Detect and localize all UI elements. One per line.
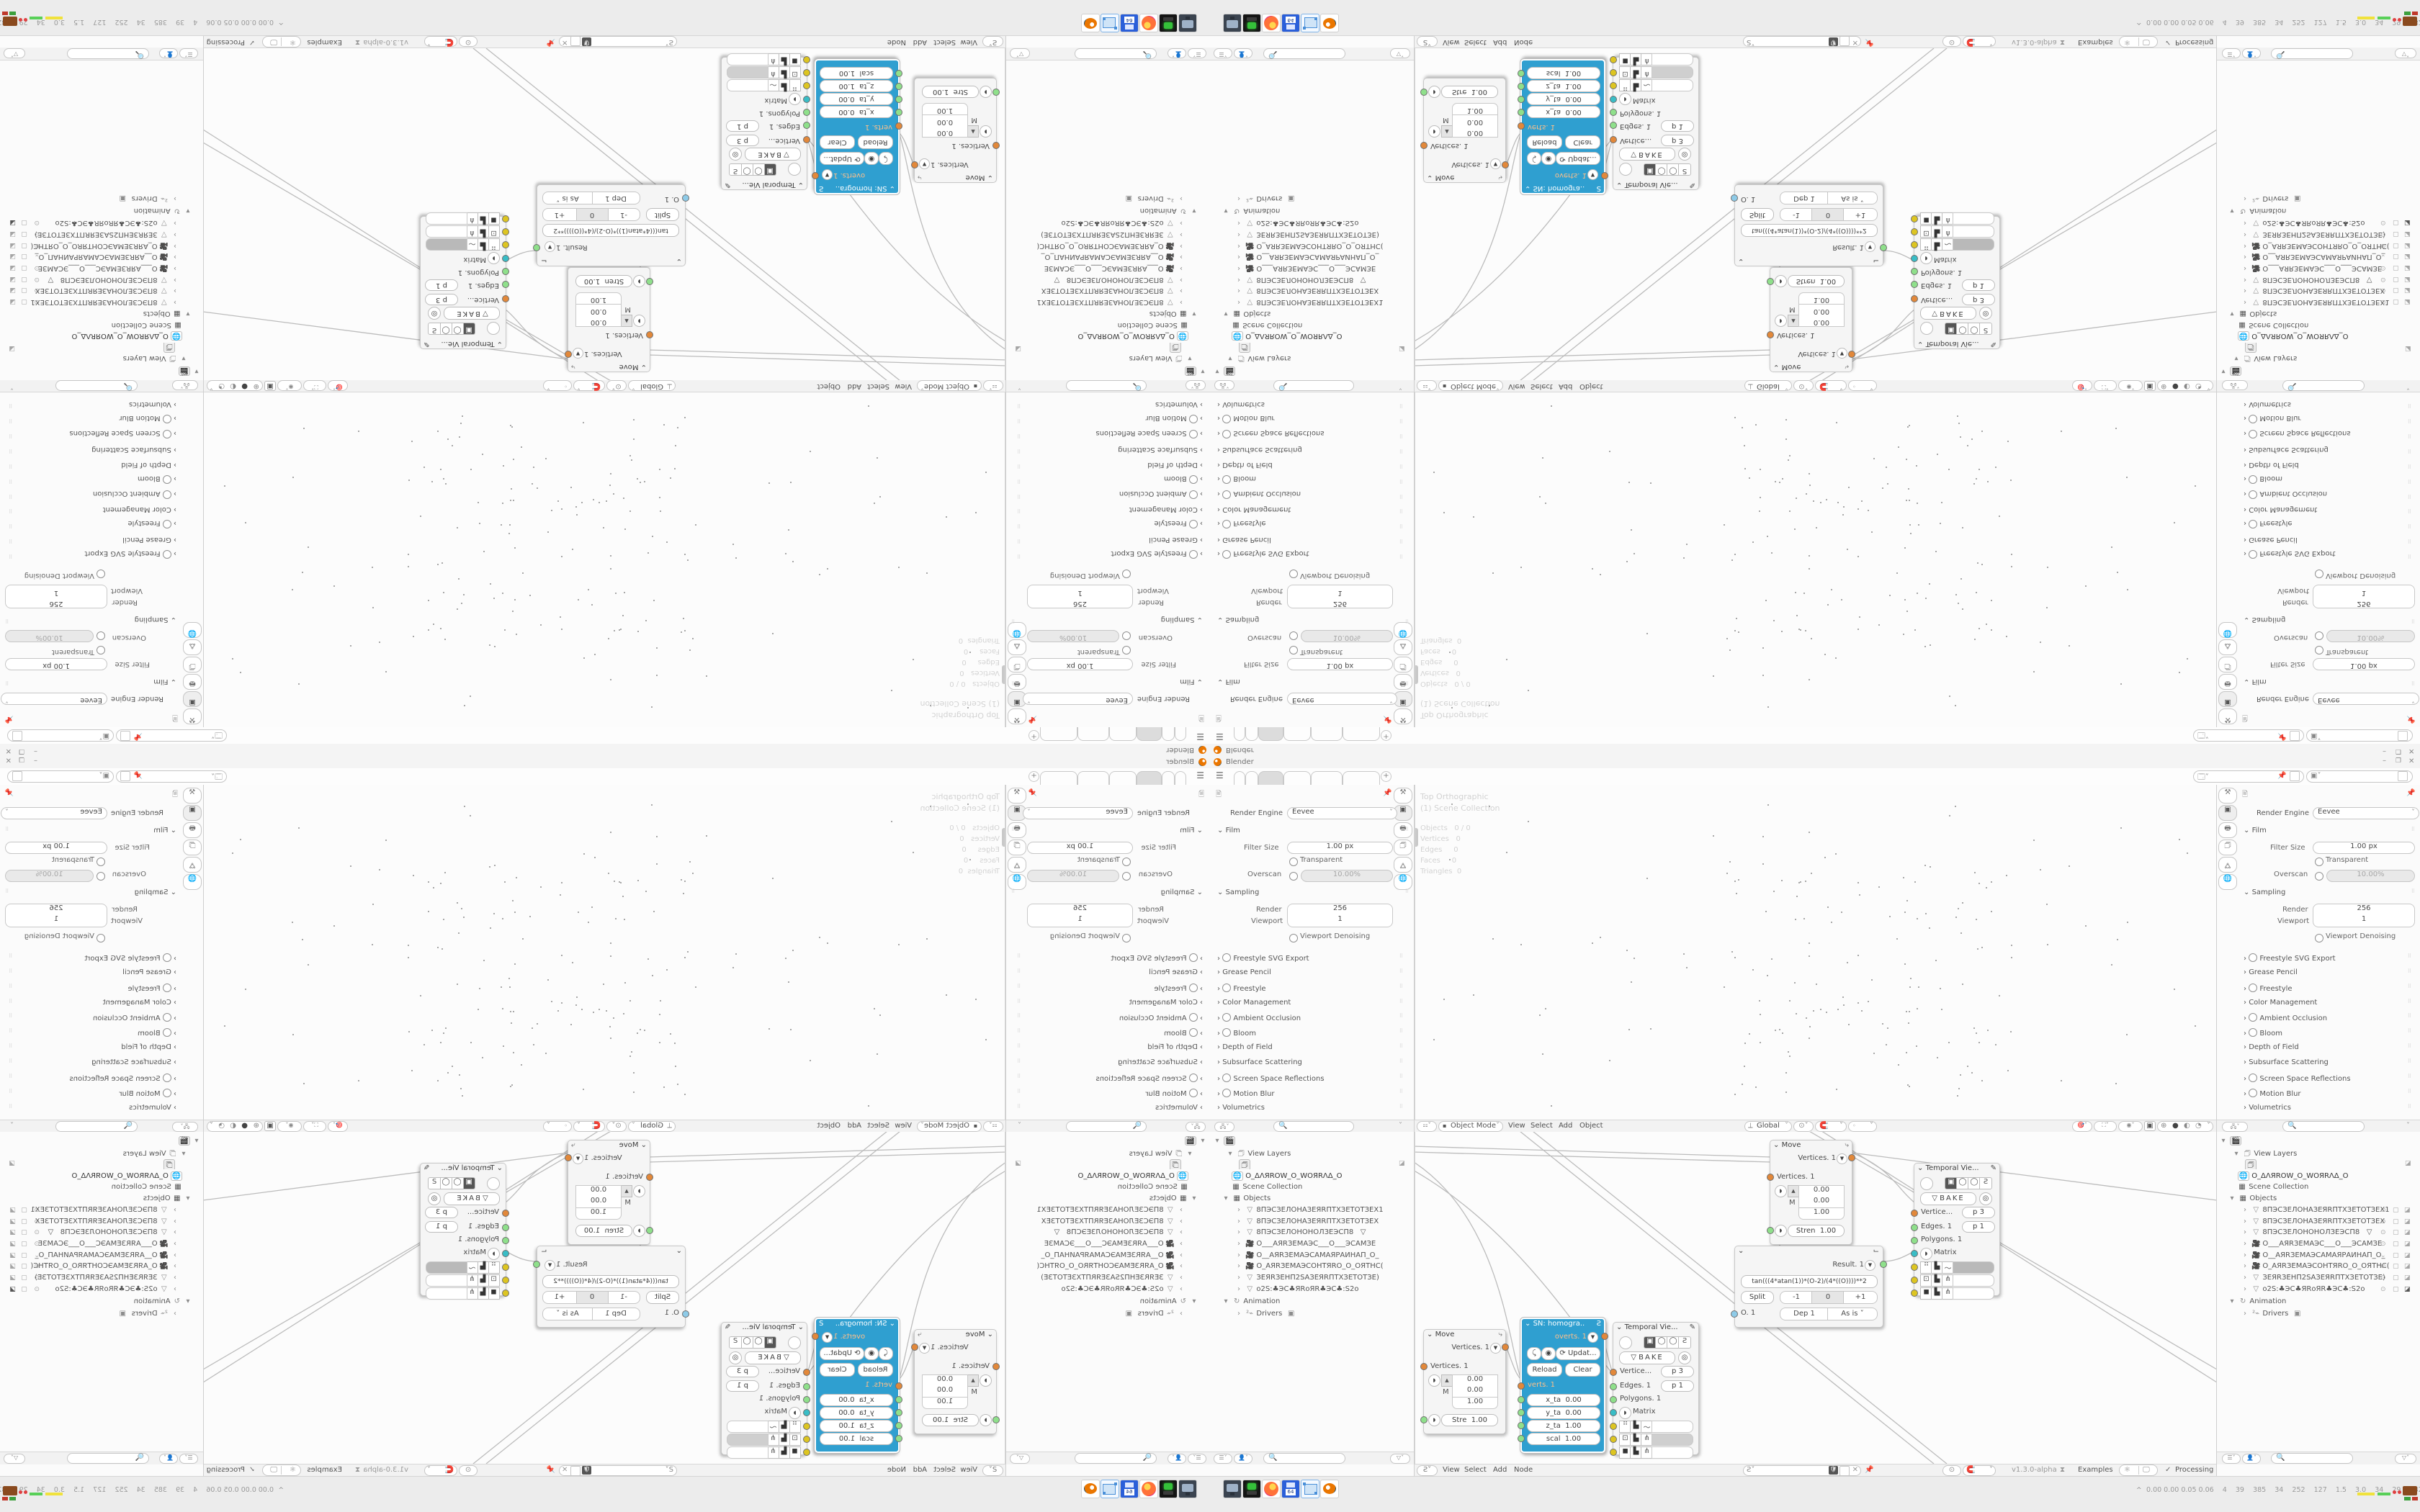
output-socket-overts[interactable] xyxy=(1601,1333,1608,1340)
curve-display-icon[interactable]: Ƨ xyxy=(1678,163,1691,176)
menu-view[interactable]: View xyxy=(1508,1122,1525,1130)
outliner-search-input[interactable]: 🔍 xyxy=(1263,48,1345,59)
taskbar-recorder-icon[interactable] xyxy=(1242,1480,1261,1498)
tray-red-dot[interactable] xyxy=(24,18,27,22)
outliner-object-row[interactable]: › ▽ 8ПЭСЗЕЛОНАЗЕЯRПТХЗЕТОТЗЕХ1 xyxy=(1031,296,1186,306)
field-y-ta[interactable]: y_ta 0.00 xyxy=(820,93,893,105)
input-socket-material-1[interactable] xyxy=(803,1423,810,1430)
link-toggle-icon[interactable]: ◗ xyxy=(1428,86,1440,98)
node-sn-homograph[interactable]: ⌄ SN: homogra..Ƨ overts. 1 ▼ ⤹ ◉ ⟳ Updat… xyxy=(1520,59,1605,194)
pin-icon[interactable]: 📌 xyxy=(1028,715,1037,723)
value-z[interactable]: 1.00 xyxy=(1798,292,1845,304)
input-socket-polygons[interactable] xyxy=(502,268,509,275)
new-scene-icon[interactable] xyxy=(2290,731,2300,741)
display-mode-icon[interactable]: ☰˅ xyxy=(1188,1454,1206,1464)
curve-icon[interactable]: ⋔ xyxy=(466,225,478,238)
outliner-object-row[interactable]: › 🎥 O_AЯRЗЕМАЭСОНТЯRO_O_OЯТНС( xyxy=(2241,1262,2396,1272)
input-socket-o[interactable] xyxy=(1731,1310,1738,1318)
eye-icon[interactable]: ◉ xyxy=(1541,152,1556,165)
taskbar-screenshot-tool-icon[interactable] xyxy=(1223,14,1242,32)
pin-icon[interactable]: 📌 xyxy=(2406,789,2415,797)
outliner-objects[interactable]: ▾ ▦ Objects xyxy=(2228,1194,2408,1205)
render-engine-dropdown[interactable]: Eevee˅ xyxy=(1,693,107,705)
new-scene-icon[interactable] xyxy=(120,731,130,741)
link-toggle-icon[interactable]: ◗ xyxy=(1428,125,1440,138)
film-section[interactable]: ⌄ Film xyxy=(2244,678,2267,685)
input-socket-xta[interactable] xyxy=(1518,1396,1525,1403)
hamburger-menu-icon[interactable]: ☰ xyxy=(1216,732,1224,742)
area-splitter[interactable] xyxy=(1414,785,1415,1476)
input-socket-o[interactable] xyxy=(1731,194,1738,202)
tray-red-dot[interactable] xyxy=(19,1490,22,1494)
viewport-3d[interactable]: Top Orthographic (1) Scene Collection Ob… xyxy=(202,785,1005,1120)
camera-icon[interactable]: ◪ xyxy=(1016,1160,1021,1167)
taskbar-save-disk-icon[interactable]: 64 xyxy=(1120,1480,1139,1498)
outliner-object-row[interactable]: › ▽ 8ПЭСЗЕЛОНОНОЛЗЕЭСП8 ▽ xyxy=(1031,274,1186,284)
workspace-tab-2[interactable] xyxy=(1245,726,1258,741)
examples-menu[interactable]: Examples xyxy=(307,1466,342,1474)
input-socket-material-1[interactable] xyxy=(502,241,509,248)
taskbar-save-disk-icon[interactable]: 64 xyxy=(1120,14,1139,32)
split-button[interactable]: Split xyxy=(1741,208,1774,221)
outliner-scene-row[interactable]: ▾ 🎬 xyxy=(6,1136,201,1146)
sampling-section[interactable]: ⌄ Sampling xyxy=(2244,888,2285,896)
outliner-object-row[interactable]: › 🎥 O__AЯRЗЕМАЭСАМАЯРАИНАП_O_ xyxy=(1031,1251,1186,1261)
taskbar-screenshot-tool-icon[interactable] xyxy=(1178,14,1197,32)
outliner-object-row[interactable]: › ▽ ЗЕЯRЗЕНП2SАЗЕЯRПТХЗЕТОТЗЕ) xyxy=(24,1274,179,1284)
update-button[interactable]: ⟳ Updat... xyxy=(1556,152,1600,165)
overscan-field[interactable]: 10.00% xyxy=(5,630,94,642)
snap-toggle-icon[interactable]: ⊙ xyxy=(1942,36,1961,47)
mode-dropdown[interactable]: ▪Object Mode˅ xyxy=(1438,1121,1503,1132)
add-workspace-button[interactable]: + xyxy=(1028,730,1039,741)
taskbar-save-disk-icon[interactable]: 64 xyxy=(1281,1480,1300,1498)
outliner-scene-row[interactable]: ▾ 🎬 xyxy=(1213,1136,1407,1146)
palette-icon[interactable]: ▙ xyxy=(778,53,790,66)
camera-icon[interactable]: ◪ xyxy=(1399,345,1404,352)
value-z[interactable]: 1.00 xyxy=(1452,1398,1498,1409)
activate-toggle[interactable] xyxy=(487,1177,500,1190)
output-socket-vertices[interactable] xyxy=(1848,1154,1855,1161)
overscan-field[interactable]: 10.00% xyxy=(1027,630,1119,642)
swatch-icon[interactable]: ⠛ xyxy=(789,79,801,91)
render-preview-icon[interactable]: ▣ xyxy=(264,1121,276,1131)
outliner-object-row[interactable]: › ▽ о2S:♣ЭС♣ЯRоЯR♣ЭС♣:S2о xyxy=(1234,1285,1389,1295)
vertices-badge[interactable]: p 3 xyxy=(726,1366,759,1377)
reload-button[interactable]: Reload xyxy=(858,135,893,149)
outliner-animation[interactable]: ▾ ↻ Animation xyxy=(1222,204,1402,215)
value-x[interactable]: 0.00 xyxy=(1452,1374,1498,1387)
outliner-view-layer-item[interactable]: 🗇◪ xyxy=(1016,1159,1181,1169)
value-x[interactable]: 0.00 xyxy=(1798,315,1845,327)
formula-input[interactable]: tan(((4*atan(1))*(O-2)/(4*((O))))**2 xyxy=(1741,1275,1878,1288)
socket-expand-icon[interactable]: ▼ xyxy=(1490,158,1501,169)
outliner-animation[interactable]: ▾ ↻ Animation xyxy=(1018,204,1198,215)
value-y[interactable]: 0.00 xyxy=(575,304,622,315)
workspace-tab-4[interactable] xyxy=(1109,726,1137,741)
input-socket-strength[interactable] xyxy=(646,278,653,285)
bake-button[interactable]: ▽ BAKE xyxy=(1619,1351,1675,1364)
menu-view[interactable]: View xyxy=(960,38,977,46)
pin-icon[interactable]: 📌 xyxy=(134,772,143,780)
input-socket-strength[interactable] xyxy=(1420,1416,1428,1423)
value-x[interactable]: 0.00 xyxy=(575,1185,622,1197)
sampling-section[interactable]: ⌄ Sampling xyxy=(135,616,176,624)
viewport-denoising-checkbox[interactable] xyxy=(2315,570,2323,578)
filter-size-field[interactable]: 1.00 px xyxy=(2313,842,2415,854)
sampling-section[interactable]: ⌄ Sampling xyxy=(1217,888,1259,896)
menu-add[interactable]: Add xyxy=(848,382,861,390)
input-socket-material-3[interactable] xyxy=(1911,1290,1918,1297)
palette-icon[interactable]: ▙ xyxy=(477,212,489,225)
minus-one-button[interactable]: -1 xyxy=(607,1291,640,1304)
link-toggle-icon[interactable]: ◗ xyxy=(1775,1225,1787,1237)
viewport-3d[interactable]: Top Orthographic (1) Scene Collection Ob… xyxy=(1415,392,2218,727)
outliner-scene-collection[interactable]: ▦ Scene Collection xyxy=(1008,1183,1188,1193)
vertices-badge[interactable]: p 3 xyxy=(425,294,458,305)
outliner-scene-collection[interactable]: ▦ Scene Collection xyxy=(2238,1183,2418,1193)
menu-add[interactable]: Add xyxy=(1559,382,1572,390)
outliner-animation[interactable]: ▾ ↻ Animation xyxy=(2228,204,2408,215)
swatch-icon[interactable]: ⠛ xyxy=(789,1421,801,1433)
swatch-icon[interactable]: ⊡ xyxy=(488,225,500,238)
stepper-up-icon[interactable]: ▲ xyxy=(1788,1185,1799,1197)
input-socket-material-2[interactable] xyxy=(502,1277,509,1284)
outliner-arrow-object[interactable]: 🌐 O_ΔΛЯROW_O_WOЯRΛΔ_O xyxy=(1008,330,1188,341)
filter-funnel-icon[interactable]: ▽˅ xyxy=(1010,48,1030,58)
scrollbar-handle[interactable] xyxy=(1415,828,1418,847)
plus-one-button[interactable]: +1 xyxy=(542,208,577,221)
depth-field[interactable]: Dep 1 xyxy=(591,1308,640,1320)
material-field-3[interactable] xyxy=(1652,1446,1693,1459)
menu-node[interactable]: Node xyxy=(1514,38,1533,46)
outliner-drivers[interactable]: › ²⌁ Drivers ▣ xyxy=(0,1310,179,1320)
outliner-search-input[interactable]: 🔍 xyxy=(1075,48,1157,59)
transparent-checkbox[interactable] xyxy=(97,858,105,866)
edges-badge[interactable]: p 1 xyxy=(425,1221,458,1233)
tray-green-indicator[interactable] xyxy=(2378,17,2390,19)
outliner-view-layers[interactable]: ▾ 🗇 View Layers xyxy=(8,1148,188,1158)
display-mode-icon[interactable]: ☰˅ xyxy=(2222,48,2241,58)
outliner-object-row[interactable]: › 🎥 O__AЯRЗЕМАЭСАМАЯРАИНАП_O_ xyxy=(1234,1251,1389,1261)
tab-output-icon[interactable]: 🖶 xyxy=(2218,674,2237,690)
outliner-arrow-object[interactable]: 🌐 O_ΔΛЯROW_O_WOЯRΛΔ_O xyxy=(1232,1171,1412,1182)
input-socket-yta[interactable] xyxy=(895,1409,902,1416)
outliner-scene-row[interactable]: ▾ 🎬 xyxy=(1013,366,1207,376)
outliner-object-row[interactable]: › 🎥 O___AЯRЗЕМАЭС___O___ЭСАМЗЕ xyxy=(24,1240,179,1250)
filter-funnel-icon[interactable]: ▽˅ xyxy=(1390,1454,1410,1464)
taskbar-firefox-icon[interactable] xyxy=(1139,1480,1158,1498)
output-socket-overts[interactable] xyxy=(812,1333,819,1340)
tray-green-indicator[interactable] xyxy=(30,17,42,19)
field-x-ta[interactable]: x_ta 0.00 xyxy=(820,1394,893,1406)
node-sn-homograph[interactable]: ⌄ SN: homogra..Ƨ overts. 1 ▼ ⤹ ◉ ⟳ Updat… xyxy=(1520,1318,1605,1453)
input-socket-o[interactable] xyxy=(682,1310,689,1318)
view-layer-selector[interactable]: ▣˅ xyxy=(2306,770,2413,783)
workspace-tab-6[interactable] xyxy=(1343,726,1380,741)
display-mode-icon[interactable]: ☰˅ xyxy=(1214,1454,1232,1464)
script-icon[interactable]: ⤹ xyxy=(879,1347,893,1360)
zero-button[interactable]: 0 xyxy=(1811,1291,1845,1304)
workspace-tab-1[interactable] xyxy=(1175,726,1186,741)
filter-id-icon[interactable]: 👤˅ xyxy=(159,48,178,58)
outliner-drivers[interactable]: › ²⌁ Drivers ▣ xyxy=(1005,192,1186,202)
curve-icon[interactable]: 〜 xyxy=(466,1261,478,1274)
pin-icon[interactable]: 📌 xyxy=(134,732,143,740)
editor-type-icon[interactable]: 🖧˅ xyxy=(1214,1122,1234,1132)
swatch-icon[interactable]: ⠛ xyxy=(488,238,500,251)
reload-button[interactable]: Reload xyxy=(1527,135,1562,149)
input-socket-xta[interactable] xyxy=(895,1396,902,1403)
mode-dropdown[interactable]: ▪Object Mode˅ xyxy=(917,380,982,391)
input-socket-polygons[interactable] xyxy=(502,1237,509,1244)
outliner-arrow-object[interactable]: 🌐 O_ΔΛЯROW_O_WOЯRΛΔ_O xyxy=(2,1171,182,1182)
tab-output-icon[interactable]: 🖶 xyxy=(1394,674,1412,690)
output-socket-vertices[interactable] xyxy=(1502,1344,1509,1351)
taskbar-save-disk-icon[interactable]: 64 xyxy=(1281,14,1300,32)
film-section[interactable]: ⌄ Film xyxy=(153,827,176,834)
menu-node[interactable]: Node xyxy=(887,1466,906,1474)
input-socket-vertices[interactable] xyxy=(992,142,1000,149)
properties-search-input[interactable]: 🔍 xyxy=(55,1121,138,1132)
tray-red-dot[interactable] xyxy=(24,1490,27,1494)
node-temporal-viewer-b[interactable]: ⌄ Temporal Vie...✎ ▣ ◯ ◯ Ƨ ▽ BAKE ◎ Vert… xyxy=(420,216,506,349)
chevron-down-icon[interactable]: ˅ xyxy=(2406,1122,2410,1130)
sampling-viewport-field[interactable]: 1 xyxy=(2313,585,2415,597)
editor-type-icon[interactable]: 🖧˅ xyxy=(1186,380,1206,390)
tab-view-layer-icon[interactable]: 🗇 xyxy=(2218,657,2237,672)
link-toggle-icon[interactable]: ◗ xyxy=(1619,93,1631,105)
swatch-icon[interactable]: ⠛ xyxy=(488,1261,500,1274)
tree-selector[interactable]: Ƨ˅ 🛡 ✕ xyxy=(559,1465,677,1476)
pin-icon[interactable]: 📌 xyxy=(547,1466,555,1474)
vertices-badge[interactable]: p 3 xyxy=(1962,294,1995,305)
minus-one-button[interactable]: -1 xyxy=(1780,208,1813,221)
input-socket-verts[interactable] xyxy=(1518,1382,1525,1390)
hamburger-menu-icon[interactable]: ☰ xyxy=(1196,770,1204,780)
lifebuoy-icon[interactable]: ◎ xyxy=(428,307,441,320)
outliner-view-layer-item[interactable]: 🗇◪ xyxy=(9,1159,175,1169)
input-socket-edges[interactable] xyxy=(803,122,810,129)
output-socket-result[interactable] xyxy=(533,1261,540,1268)
edges-badge[interactable]: p 1 xyxy=(425,279,458,291)
input-socket-material-2[interactable] xyxy=(502,228,509,235)
value-y[interactable]: 0.00 xyxy=(1798,1197,1845,1208)
properties-search-input[interactable]: 🔍 xyxy=(2282,1121,2365,1132)
input-socket-material-1[interactable] xyxy=(1610,82,1617,89)
close-button[interactable]: ✕ xyxy=(6,747,12,755)
outliner-objects[interactable]: ▾ ▦ Objects xyxy=(12,307,192,318)
xray-icon[interactable]: ◉˅ xyxy=(277,380,302,391)
snap-mode-icons[interactable]: 🧲˅ xyxy=(573,1121,605,1132)
tab-world-icon[interactable]: 🌐 xyxy=(1008,874,1026,890)
tab-render-icon[interactable]: ▣ xyxy=(183,691,202,707)
formula-input[interactable]: tan(((4*atan(1))*(O-2)/(4*((O))))**2 xyxy=(1741,224,1878,237)
orientation-dropdown[interactable]: ⟂Global˅ xyxy=(628,1121,676,1132)
tray-red-dot[interactable] xyxy=(2398,18,2401,22)
sampling-section[interactable]: ⌄ Sampling xyxy=(2244,616,2285,624)
taskbar-blender-icon[interactable] xyxy=(1320,14,1339,32)
value-y[interactable]: 0.00 xyxy=(922,114,968,126)
input-socket-material-3[interactable] xyxy=(1610,1449,1617,1456)
formula-input[interactable]: tan(((4*atan(1))*(O-2)/(4*((O))))**2 xyxy=(542,1275,679,1288)
input-socket-zta[interactable] xyxy=(1518,83,1525,90)
edges-badge[interactable]: p 1 xyxy=(1661,1380,1694,1392)
editor-type-icon[interactable]: 🖧˅ xyxy=(1214,380,1234,390)
outliner-arrow-object[interactable]: 🌐 O_ΔΛЯROW_O_WOЯRΛΔ_O xyxy=(1008,1171,1188,1182)
viewport-denoising-checkbox[interactable] xyxy=(1289,934,1298,942)
input-socket-zta[interactable] xyxy=(895,1422,902,1429)
material-field-2[interactable] xyxy=(1953,225,1994,238)
menu-object[interactable]: Object xyxy=(1579,1122,1603,1130)
snap-mode-group[interactable]: 🧲˅ xyxy=(1963,36,1996,47)
sampling-viewport-field[interactable]: 1 xyxy=(5,585,107,597)
render-preview-icon[interactable]: ▣ xyxy=(264,381,276,391)
tray-green-indicator[interactable] xyxy=(30,1493,42,1495)
socket-expand-icon[interactable]: ▼ xyxy=(822,1332,833,1343)
tab-world-icon[interactable]: 🌐 xyxy=(183,874,202,890)
activate-toggle[interactable] xyxy=(788,1336,801,1349)
render-engine-dropdown[interactable]: Eevee˅ xyxy=(1023,693,1133,705)
input-socket-vertices[interactable] xyxy=(1767,1174,1774,1181)
outliner-view-layer-item[interactable]: 🗇◪ xyxy=(1016,343,1181,353)
field-x-ta[interactable]: x_ta 0.00 xyxy=(820,106,893,118)
material-field-3[interactable] xyxy=(426,1287,467,1300)
material-field-2[interactable] xyxy=(1652,66,1693,78)
filter-funnel-icon[interactable]: ▽˅ xyxy=(4,48,25,58)
copy-view-layer-icon[interactable] xyxy=(12,731,22,741)
outliner-object-row[interactable]: › 🎥 O___AЯRЗЕМАЭС___O___ЭСАМЗЕ xyxy=(1031,1240,1186,1250)
sampling-viewport-field[interactable]: 1 xyxy=(1287,585,1393,597)
snap-toggle-icon[interactable]: ⊙ xyxy=(459,36,478,47)
tree-selector[interactable]: Ƨ˅ 🛡 ✕ xyxy=(1743,36,1861,47)
strength-field[interactable]: Stre 1.00 xyxy=(1441,86,1498,98)
lifebuoy-icon[interactable]: ◎ xyxy=(729,148,742,161)
pin-icon[interactable]: 📌 xyxy=(547,38,555,46)
taskbar-firefox-icon[interactable] xyxy=(1139,14,1158,32)
minimize-button[interactable]: – xyxy=(2383,747,2386,755)
filter-funnel-icon[interactable]: ▽˅ xyxy=(2395,1454,2416,1464)
sampling-viewport-field[interactable]: 1 xyxy=(1027,915,1133,927)
bake-button[interactable]: ▽ BAKE xyxy=(745,1351,801,1364)
pin-icon[interactable]: 📌 xyxy=(2277,732,2286,740)
filter-size-field[interactable]: 1.00 px xyxy=(1287,842,1393,854)
fake-user-shield-icon[interactable]: 🛡 xyxy=(1829,37,1838,46)
outliner-object-row[interactable]: › ▽ о2S:♣ЭС♣ЯRоЯR♣ЭС♣:S2о xyxy=(1234,217,1389,227)
curve-display-icon[interactable]: Ƨ xyxy=(729,1336,742,1349)
input-socket-matrix[interactable] xyxy=(1610,96,1617,103)
camera-icon[interactable]: ◪ xyxy=(2405,1160,2411,1167)
material-field-1[interactable] xyxy=(1953,238,1994,251)
workspace-tab-6[interactable] xyxy=(1040,726,1077,741)
monitor-icon[interactable]: 🖵 xyxy=(270,38,277,46)
tab-tool-icon[interactable]: ⚒ xyxy=(183,708,202,724)
strength-field[interactable]: Stre 1.00 xyxy=(1441,1414,1498,1426)
node-editor[interactable]: ⌄ Move⤷ Vertices. 1 ▼ Vertices. 1 ◗ ▲ 0.… xyxy=(202,1132,1005,1464)
nodes-icon[interactable]: ⚛ xyxy=(290,38,296,46)
display-mode-icon[interactable]: ☰˅ xyxy=(1188,48,1206,58)
input-socket-yta[interactable] xyxy=(1518,96,1525,103)
output-socket-vertices[interactable] xyxy=(1502,161,1509,168)
input-socket-matrix[interactable] xyxy=(502,255,509,262)
chevron-down-icon[interactable]: ˅ xyxy=(1399,1122,1402,1130)
workspace-tab-4[interactable] xyxy=(1109,771,1137,786)
material-field-3[interactable] xyxy=(1652,53,1693,66)
outliner-object-row[interactable]: › 🎥 O_AЯRЗЕМАЭСОНТЯRO_O_OЯТНС( xyxy=(1031,240,1186,250)
stepper-up-icon[interactable]: ▲ xyxy=(1441,1374,1453,1387)
input-socket-vertices[interactable] xyxy=(1911,295,1918,302)
tab-world-icon[interactable]: 🌐 xyxy=(1394,874,1412,890)
outliner-view-layer-item[interactable]: 🗇◪ xyxy=(1239,343,1404,353)
curve-icon[interactable]: 〜 xyxy=(767,79,779,91)
sampling-section[interactable]: ⌄ Sampling xyxy=(1217,616,1259,624)
tray-brown-icon[interactable] xyxy=(2403,1486,2417,1495)
outliner-drivers[interactable]: › ²⌁ Drivers ▣ xyxy=(2241,192,2420,202)
edge-display-icon[interactable]: ◯ xyxy=(752,1336,765,1349)
curve-icon[interactable]: ⋔ xyxy=(466,1287,478,1300)
menu-select[interactable]: Select xyxy=(1531,1122,1553,1130)
sampling-viewport-field[interactable]: 1 xyxy=(1287,915,1393,927)
taskbar-frame-capture-icon[interactable] xyxy=(1301,14,1319,32)
camera-icon[interactable]: ◪ xyxy=(1399,1160,1404,1167)
transparent-checkbox[interactable] xyxy=(97,646,105,654)
node-temporal-viewer-a[interactable]: ⌄ Temporal Vie...✎ ▣ ◯ ◯ Ƨ ▽ BAKE ◎ Vert… xyxy=(1613,1322,1699,1455)
script-icon[interactable]: ⤹ xyxy=(1527,1347,1541,1360)
link-toggle-icon[interactable]: ◗ xyxy=(980,86,992,98)
value-y[interactable]: 0.00 xyxy=(1452,114,1498,126)
outliner-drivers[interactable]: › ²⌁ Drivers ▣ xyxy=(1005,1310,1186,1320)
outliner-object-row[interactable]: › ▽ ЗЕЯRЗЕНП2SАЗЕЯRПТХЗЕТОТЗЕ) xyxy=(1031,1274,1186,1284)
output-socket-vertices[interactable] xyxy=(911,1344,918,1351)
value-x[interactable]: 0.00 xyxy=(1452,125,1498,138)
render-engine-dropdown[interactable]: Eevee˅ xyxy=(1,807,107,819)
output-socket-result[interactable] xyxy=(533,244,540,251)
swatch-icon[interactable]: ◼ xyxy=(789,1446,801,1459)
curve-icon[interactable]: ⋔ xyxy=(466,212,478,225)
outliner-objects[interactable]: ▾ ▦ Objects xyxy=(1222,307,1402,318)
outliner-view-layers[interactable]: ▾ 🗇 View Layers xyxy=(2232,354,2412,364)
outliner-object-row[interactable]: › ▽ ЗЕЯRЗЕНП2SАЗЕЯRПТХЗЕТОТЗЕ) xyxy=(1031,228,1186,238)
sampling-render-field[interactable]: 256 xyxy=(1287,595,1393,608)
node-editor[interactable]: ⌄ Move⤷ Vertices. 1 ▼ Vertices. 1 ◗ ▲ 0.… xyxy=(1415,1132,2218,1464)
face-display-icon[interactable]: ◯ xyxy=(740,163,753,176)
render-engine-dropdown[interactable]: Eevee˅ xyxy=(2313,693,2419,705)
outliner-view-layers[interactable]: ▾ 🗇 View Layers xyxy=(1226,354,1406,364)
workspace-tab-1[interactable] xyxy=(1175,771,1186,786)
new-scene-icon[interactable] xyxy=(2290,771,2300,781)
outliner-object-row[interactable]: › ▽ 8ПЭСЗЕЛОНАЗЕЯRПТХЗЕТОТЗЕХ xyxy=(2241,1218,2396,1228)
snap-toggle-icon[interactable]: ⊙ xyxy=(459,1465,478,1476)
input-socket-matrix[interactable] xyxy=(803,1409,810,1416)
socket-expand-icon[interactable]: ▼ xyxy=(573,1153,583,1164)
input-socket-vertices[interactable] xyxy=(992,1363,1000,1370)
curve-display-icon[interactable]: Ƨ xyxy=(428,1177,441,1189)
value-x[interactable]: 0.00 xyxy=(922,125,968,138)
outliner-search-input[interactable]: 🔍 xyxy=(67,1453,149,1464)
workspace-tab-5[interactable] xyxy=(1311,771,1343,786)
node-move-b[interactable]: ⌄ Move⤷ Vertices. 1 ▼ Vertices. 1 ◗ ▲ 0.… xyxy=(568,1140,650,1245)
pin-icon[interactable]: 📌 xyxy=(2406,715,2415,723)
outliner-object-row[interactable]: › 🎥 O_AЯRЗЕМАЭСОНТЯRO_O_OЯТНС( xyxy=(2241,240,2396,250)
node-sn-homograph[interactable]: ⌄ SN: homogra..Ƨ overts. 1 ▼ ⤹ ◉ ⟳ Updat… xyxy=(815,1318,900,1453)
outliner-view-layers[interactable]: ▾ 🗇 View Layers xyxy=(1014,354,1194,364)
editor-type-icon[interactable]: 🖧˅ xyxy=(172,1122,198,1132)
bake-button[interactable]: ▽ BAKE xyxy=(1920,307,1976,320)
sampling-render-field[interactable]: 256 xyxy=(2313,595,2415,608)
close-button[interactable]: ✕ xyxy=(2408,757,2414,765)
material-field-3[interactable] xyxy=(727,1446,768,1459)
chevron-down-icon[interactable]: ˅ xyxy=(2406,382,2410,390)
